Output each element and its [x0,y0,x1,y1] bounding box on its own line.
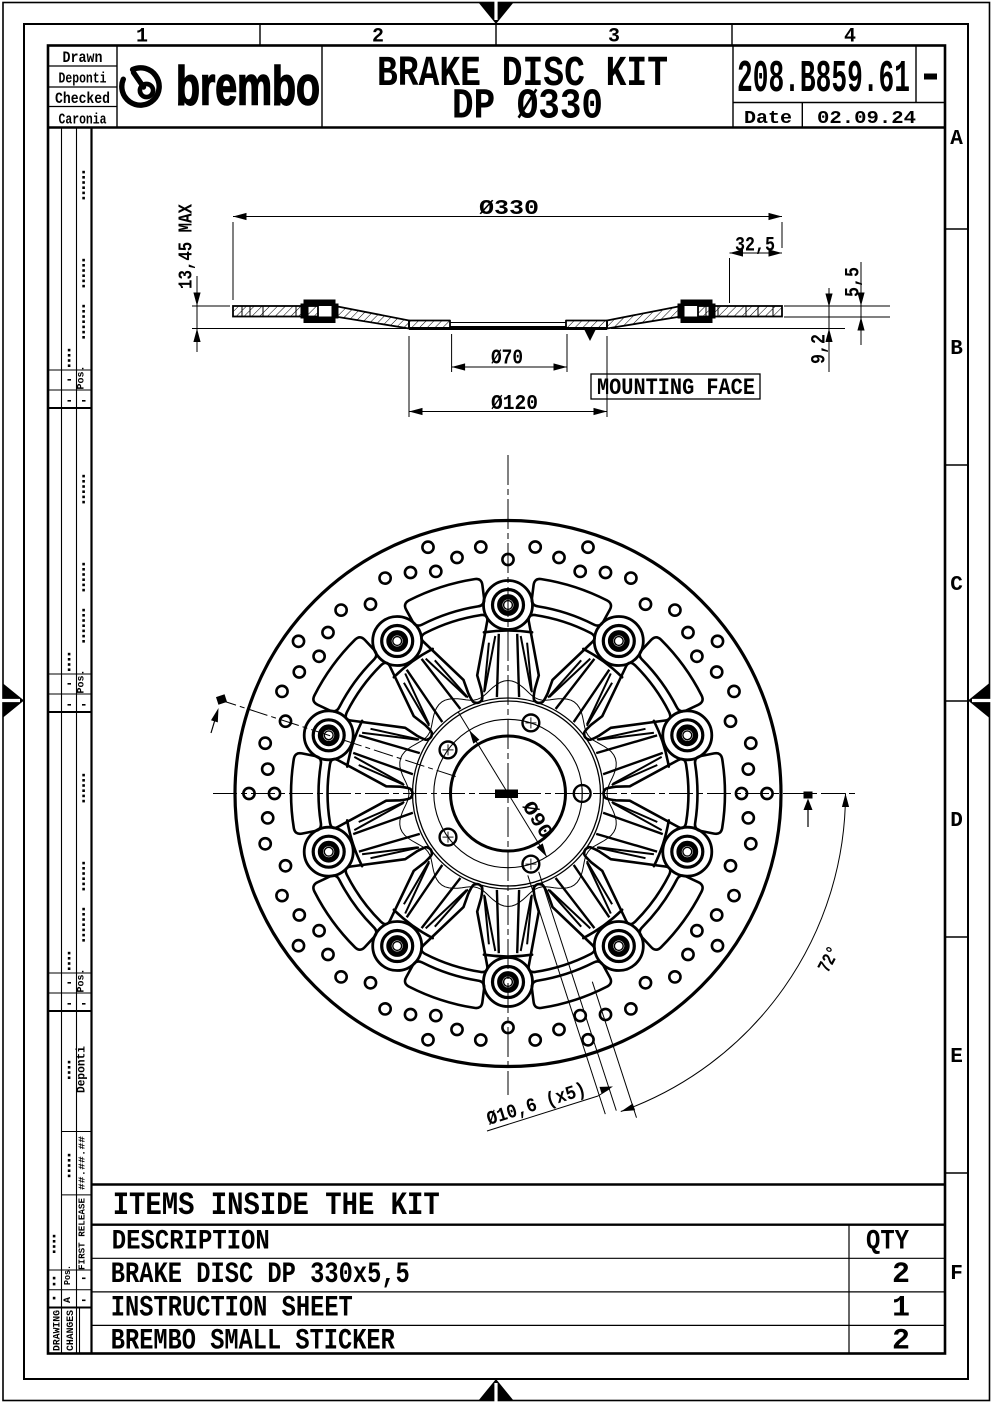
svg-text:CHANGES: CHANGES [66,1310,77,1351]
svg-text:F: F [950,1263,963,1286]
svg-text:Pos.: Pos. [77,669,88,693]
svg-text:2: 2 [372,26,384,49]
svg-text:13,45 MAX: 13,45 MAX [176,204,198,289]
svg-text:1: 1 [892,1291,910,1325]
svg-text:2: 2 [892,1325,910,1359]
svg-text:##.##.##: ##.##.## [77,1136,88,1190]
svg-text:3: 3 [608,26,620,49]
svg-text:BRAKE DISC DP 330x5,5: BRAKE DISC DP 330x5,5 [111,1258,410,1292]
svg-text:Ø70: Ø70 [491,348,523,371]
svg-text:Ø120: Ø120 [491,393,538,416]
svg-text:2: 2 [892,1258,910,1292]
svg-text:DESCRIPTION: DESCRIPTION [112,1227,270,1258]
svg-text:A: A [950,128,963,151]
svg-text:Deponti: Deponti [75,1046,89,1093]
svg-text:DRAWING: DRAWING [53,1310,64,1351]
svg-text:DP Ø330: DP Ø330 [452,82,603,131]
svg-text:1: 1 [136,26,148,49]
svg-text:208.B859.61: 208.B859.61 [737,54,910,105]
svg-text:Pos.: Pos. [77,968,88,992]
svg-text:FIRST RELEASE: FIRST RELEASE [77,1198,88,1270]
svg-text:INSTRUCTION SHEET: INSTRUCTION SHEET [111,1291,353,1325]
svg-text:32,5: 32,5 [735,235,775,258]
svg-text:ITEMS INSIDE THE KIT: ITEMS INSIDE THE KIT [113,1187,440,1224]
svg-text:Pos.: Pos. [62,1265,73,1285]
svg-text:A: A [63,1297,74,1303]
svg-text:Caronia: Caronia [59,112,107,129]
svg-text:Ø330: Ø330 [479,198,539,221]
svg-text:MOUNTING FACE: MOUNTING FACE [597,375,755,402]
svg-text:brembo: brembo [176,55,320,117]
svg-text:D: D [950,810,963,833]
svg-text:C: C [950,574,963,597]
svg-text:Drawn: Drawn [63,49,103,67]
svg-text:Date: Date [744,108,792,129]
svg-text:Checked: Checked [55,90,110,108]
svg-text:B: B [950,338,963,361]
svg-text:9,2: 9,2 [809,334,832,364]
svg-text:Deponti: Deponti [59,71,107,88]
svg-text:BREMBO SMALL STICKER: BREMBO SMALL STICKER [111,1325,395,1359]
svg-text:5,5: 5,5 [843,267,866,297]
svg-text:E: E [950,1046,963,1069]
svg-text:4: 4 [844,26,856,49]
svg-text:Pos.: Pos. [77,365,88,389]
svg-text:QTY: QTY [866,1227,909,1258]
svg-text:02.09.24: 02.09.24 [817,108,916,129]
